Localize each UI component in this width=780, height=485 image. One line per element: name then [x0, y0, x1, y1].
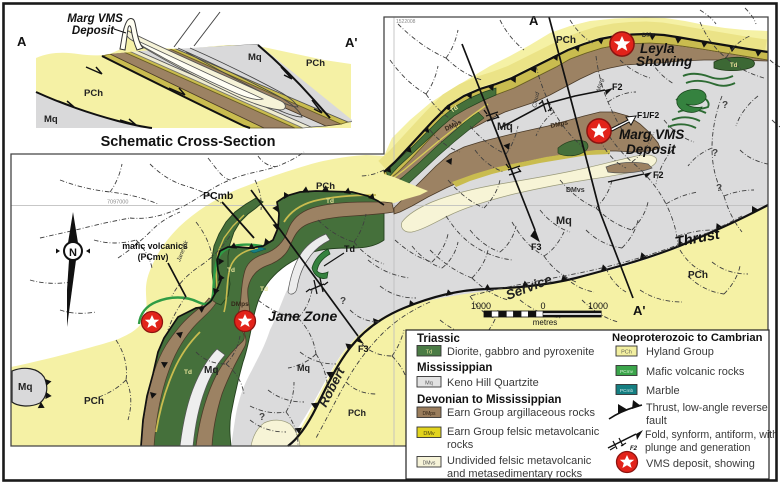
- svg-text:F3: F3: [531, 242, 542, 252]
- svg-text:DMps: DMps: [231, 301, 249, 308]
- svg-text:PCh: PCh: [84, 88, 103, 99]
- svg-text:Triassic: Triassic: [417, 333, 460, 345]
- svg-text:DMvs: DMvs: [566, 187, 585, 194]
- svg-text:VMS deposit, showing: VMS deposit, showing: [646, 458, 755, 470]
- svg-text:Marg VMS: Marg VMS: [619, 127, 684, 142]
- svg-text:plunge and generation: plunge and generation: [645, 442, 751, 454]
- svg-text:F2: F2: [630, 446, 638, 452]
- svg-text:Undivided felsic metavolcanic: Undivided felsic metavolcanic: [447, 455, 592, 467]
- svg-text:metres: metres: [533, 318, 557, 327]
- svg-text:PCh: PCh: [84, 396, 104, 407]
- svg-text:Mafic volcanic rocks: Mafic volcanic rocks: [646, 366, 745, 378]
- svg-text:Mq: Mq: [44, 114, 58, 125]
- svg-text:Mq: Mq: [297, 363, 310, 373]
- svg-text:Mq: Mq: [556, 215, 572, 227]
- svg-text:DMv: DMv: [642, 32, 656, 39]
- svg-text:PCh: PCh: [556, 35, 576, 46]
- svg-text:?: ?: [722, 100, 728, 111]
- svg-text:Mq: Mq: [204, 365, 218, 376]
- svg-text:PCmb: PCmb: [203, 190, 233, 202]
- svg-text:F2: F2: [612, 82, 623, 92]
- svg-text:DMvs: DMvs: [423, 461, 436, 467]
- svg-text:Deposit: Deposit: [72, 25, 115, 37]
- svg-text:Earn Group felsic metavolcanic: Earn Group felsic metavolcanic: [447, 426, 600, 438]
- svg-text:PCh: PCh: [306, 58, 325, 69]
- svg-text:1522008: 1522008: [396, 19, 416, 25]
- svg-text:Td: Td: [184, 369, 192, 376]
- svg-text:Deposit: Deposit: [626, 142, 676, 157]
- svg-text:Mq: Mq: [18, 382, 32, 393]
- svg-text:PCh: PCh: [316, 181, 335, 192]
- svg-text:Mq: Mq: [425, 381, 433, 387]
- svg-text:N: N: [69, 247, 77, 259]
- svg-text:Thrust, low-angle reverse: Thrust, low-angle reverse: [646, 402, 768, 414]
- svg-text:PCh: PCh: [348, 408, 366, 418]
- svg-text:Neoproterozoic to Cambrian: Neoproterozoic to Cambrian: [612, 332, 763, 344]
- svg-text:Td: Td: [326, 198, 334, 205]
- svg-text:Fold, synform, antiform, with: Fold, synform, antiform, with: [645, 429, 778, 441]
- svg-text:rocks: rocks: [447, 439, 474, 451]
- svg-text:A: A: [17, 34, 27, 49]
- svg-text:A: A: [529, 13, 539, 28]
- svg-text:Devonian to Mississippian: Devonian to Mississippian: [417, 394, 561, 406]
- svg-text:?: ?: [340, 296, 346, 307]
- svg-text:Td: Td: [730, 63, 738, 69]
- svg-text:Td: Td: [426, 350, 432, 356]
- svg-text:Mq: Mq: [497, 121, 513, 133]
- svg-text:Marg VMS: Marg VMS: [67, 13, 123, 25]
- svg-text:A': A': [633, 303, 645, 318]
- svg-text:Showing: Showing: [636, 54, 693, 69]
- svg-text:Td: Td: [344, 244, 355, 254]
- svg-text:Schematic Cross-Section: Schematic Cross-Section: [101, 134, 276, 150]
- svg-text:PCh: PCh: [621, 350, 632, 356]
- svg-text:Td: Td: [260, 286, 268, 293]
- svg-text:DMps: DMps: [422, 411, 436, 417]
- svg-text:(PCmv): (PCmv): [138, 252, 169, 262]
- svg-text:mafic volcanics: mafic volcanics: [122, 241, 188, 251]
- svg-text:?: ?: [712, 148, 718, 159]
- svg-text:0: 0: [540, 301, 545, 311]
- svg-text:1000: 1000: [588, 301, 608, 311]
- svg-text:F1/F2: F1/F2: [637, 110, 659, 120]
- svg-text:?: ?: [259, 412, 265, 423]
- svg-text:7097000: 7097000: [107, 200, 128, 206]
- svg-text:?: ?: [716, 183, 722, 194]
- svg-text:Mq: Mq: [248, 52, 262, 63]
- svg-text:Keno Hill Quartzite: Keno Hill Quartzite: [447, 377, 539, 389]
- svg-text:and metasedimentary rocks: and metasedimentary rocks: [447, 468, 583, 480]
- svg-text:A': A': [345, 35, 357, 50]
- svg-text:PCh: PCh: [688, 270, 708, 281]
- svg-text:Earn Group argillaceous rocks: Earn Group argillaceous rocks: [447, 407, 595, 419]
- svg-text:Marble: Marble: [646, 385, 680, 397]
- svg-text:F2: F2: [653, 170, 664, 180]
- svg-text:PCmv: PCmv: [620, 369, 634, 375]
- svg-text:Diorite, gabbro and pyroxenite: Diorite, gabbro and pyroxenite: [447, 346, 594, 358]
- svg-text:fault: fault: [646, 415, 667, 427]
- svg-text:Mississippian: Mississippian: [417, 362, 492, 374]
- svg-text:Td: Td: [227, 267, 235, 274]
- svg-text:DMv: DMv: [423, 431, 435, 437]
- svg-text:F3: F3: [358, 344, 369, 354]
- svg-text:Hyland Group: Hyland Group: [646, 346, 714, 358]
- svg-text:Jane Zone: Jane Zone: [268, 308, 337, 324]
- svg-text:PCmb: PCmb: [620, 388, 634, 394]
- svg-text:1000: 1000: [471, 301, 491, 311]
